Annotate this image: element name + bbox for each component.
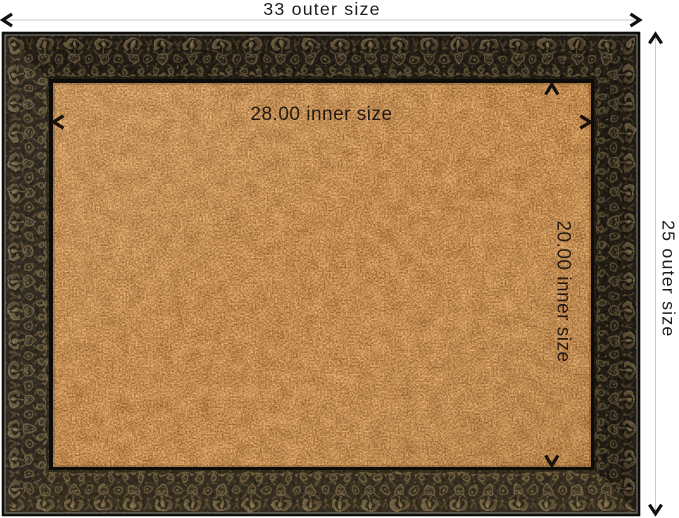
svg-text:28.00 inner size: 28.00 inner size <box>250 104 392 125</box>
svg-text:20.00 inner size: 20.00 inner size <box>553 220 574 362</box>
svg-text:25 outer size: 25 outer size <box>658 220 678 337</box>
svg-text:33 outer size: 33 outer size <box>263 0 380 19</box>
